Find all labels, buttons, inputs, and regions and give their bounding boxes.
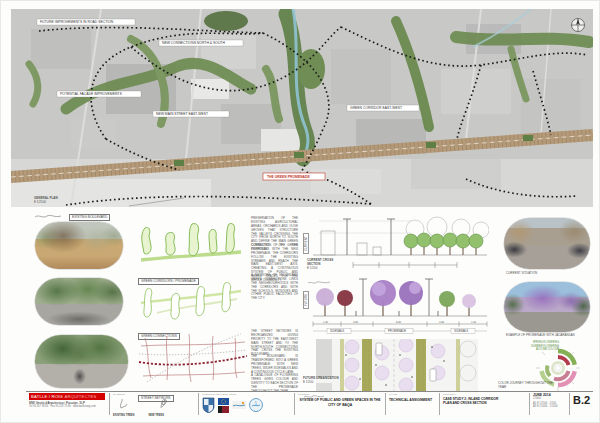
- green-promenade-label: THE GREEN PROMENADE: [267, 175, 311, 179]
- titleblock-vline: [109, 393, 110, 415]
- map-scale-note: GENERAL PLAN E 1/2500: [34, 197, 68, 223]
- symbols-cell: SYMBOLS EXISTING TREES NEW TREES: [113, 393, 195, 417]
- scale-main: 1/5000: [533, 397, 567, 400]
- dim-value: 3.00: [439, 321, 445, 324]
- north-compass-icon: [572, 19, 585, 32]
- section-future-drawing: [311, 273, 489, 321]
- titleblock-vline: [294, 393, 295, 415]
- project-header: PROJECT: [298, 393, 382, 396]
- symbols-header: SYMBOLS: [113, 393, 195, 396]
- scale-note-scale: E 1/2500: [34, 201, 68, 205]
- scale-a3: A3 E 1/5000 - 1/1000: [533, 405, 567, 408]
- phase-cell: PHASE TECHNICAL ASSIGNMENT: [389, 393, 435, 417]
- firm-cell: BATLLE I ROIG ARQUITECTES MMI Gestió d'A…: [29, 393, 105, 417]
- drawing-line2: PLAN AND CROSS SECTION: [443, 401, 525, 405]
- drawing-header: PROPOSAL: [443, 393, 525, 396]
- map-label: POTENTIAL FACADE IMPROVEMENTS: [60, 92, 122, 96]
- dim-value: 1.50: [323, 321, 329, 324]
- logos-cell: CLIENTS & COLLABORATORS: [202, 393, 290, 417]
- titleblock-vline: [529, 393, 530, 415]
- dim-label: SIDEWALK: [330, 329, 344, 333]
- wedco-round-logo-icon: [249, 398, 263, 412]
- titleblock-vline: [198, 393, 199, 415]
- phase-title: TECHNICAL ASSIGNMENT: [389, 398, 435, 402]
- caption-scale: E 1/200: [307, 267, 347, 271]
- eu-flag-icon: [218, 398, 229, 405]
- masterplan-aerial-map: FUTURE IMPROVEMENTS IN ROAD SECTION NEW …: [11, 9, 593, 207]
- note-paragraph: THE BOULEVARD IS TRANSFORMED INTO A GREE…: [251, 355, 298, 374]
- firm-name: BATLLE I ROIG: [31, 394, 63, 399]
- photo-jacaranda-promenade: [504, 282, 590, 332]
- tree-symbols-icon: [113, 398, 193, 410]
- photo-almond-orchard: [35, 222, 123, 269]
- date-cell: JUNE 2014 1/5000 A1 E 1/2500 - 1/500 A3 …: [533, 393, 567, 417]
- chart-caption: COLOR JOURNEY THROUGHOUT THE YEAR: [498, 382, 558, 390]
- logos-header: CLIENTS & COLLABORATORS: [202, 393, 290, 396]
- firm-contact: Tel 93 457 98 84 · Fax 93 218 73 36 · ww…: [29, 405, 105, 408]
- section-current-dimension: [351, 261, 461, 269]
- existing-boulevard-tag: EXISTING BOULEVARD: [69, 214, 110, 221]
- dim-value: 6.00: [396, 321, 402, 324]
- titleblock-divider: [26, 391, 593, 392]
- section-current-side-label: CURRENT: [303, 233, 309, 254]
- leader-line: [129, 197, 189, 209]
- titleblock-vline: [385, 393, 386, 415]
- map-label: NEW CONNECTIONS NORTH & SOUTH: [162, 41, 225, 45]
- photo-current-street: [504, 218, 590, 269]
- dim-value: 3.00: [353, 321, 359, 324]
- existing-boulevard-label: EXISTING BOULEVARD: [69, 204, 110, 222]
- map-label: FUTURE IMPROVEMENTS IN ROAD SECTION: [40, 20, 114, 24]
- firm-name2: ARQUITECTES: [64, 394, 96, 399]
- titleblock-vline: [569, 393, 570, 415]
- dim-label: PROMENADE: [388, 329, 406, 333]
- plan-view-drawing: [316, 339, 478, 391]
- firm-logo: BATLLE I ROIG ARQUITECTES: [29, 393, 105, 400]
- photo2-caption: EXAMPLE OF PROMENADE WITH JACARANDAS: [506, 334, 590, 338]
- dim-value: 1.50: [471, 321, 477, 324]
- diagram-street-network: [137, 332, 249, 384]
- symbol-label-new: NEW TREES: [148, 414, 163, 417]
- mediterranean-logo-icon: [232, 401, 246, 409]
- project-cell: PROJECT SYSTEM OF PUBLIC AND GREEN SPACE…: [298, 393, 382, 417]
- scale-bar-icon: [34, 213, 64, 219]
- map-label: GREEN CORRIDOR EAST-WEST: [350, 106, 402, 110]
- sheet-number: B.2: [573, 394, 590, 406]
- note-paragraph: A NETWORK OF SECONDARY GREEN CONNECTIONS…: [251, 274, 298, 301]
- section-future-dimensions: 1.50 3.00 6.00 3.00 1.50 SIDEWALK PROMEN…: [311, 321, 489, 337]
- titleblock-vline: [439, 393, 440, 415]
- diagram-green-corridors: [137, 220, 243, 266]
- dim-label: SIDEWALK: [454, 329, 468, 333]
- section-future-side-label: FUTURE: [303, 291, 309, 309]
- symbol-label-existing: EXISTING TREES: [113, 414, 134, 417]
- photo-green-street: [35, 278, 123, 325]
- project-title: SYSTEM OF PUBLIC AND GREEN SPACES IN THE…: [298, 398, 382, 408]
- diagram-green-connections: [137, 279, 243, 323]
- caption-scale: E 1/200: [303, 381, 339, 385]
- municipality-crest-icon: [202, 397, 215, 413]
- phase-header: PHASE: [389, 393, 435, 396]
- photo-tree-boulevard: [35, 335, 128, 388]
- partner-logo-icon: [218, 406, 229, 413]
- presentation-board: FUTURE IMPROVEMENTS IN ROAD SECTION NEW …: [0, 0, 600, 423]
- photo1-caption: CURRENT SITUATION: [506, 272, 537, 276]
- map-label: NEW MAIN STREET EAST-WEST: [156, 112, 208, 116]
- section-current-drawing: [311, 213, 489, 259]
- drawing-cell: PROPOSAL CASE STUDY 2: INLAND CORRIDOR P…: [443, 393, 525, 417]
